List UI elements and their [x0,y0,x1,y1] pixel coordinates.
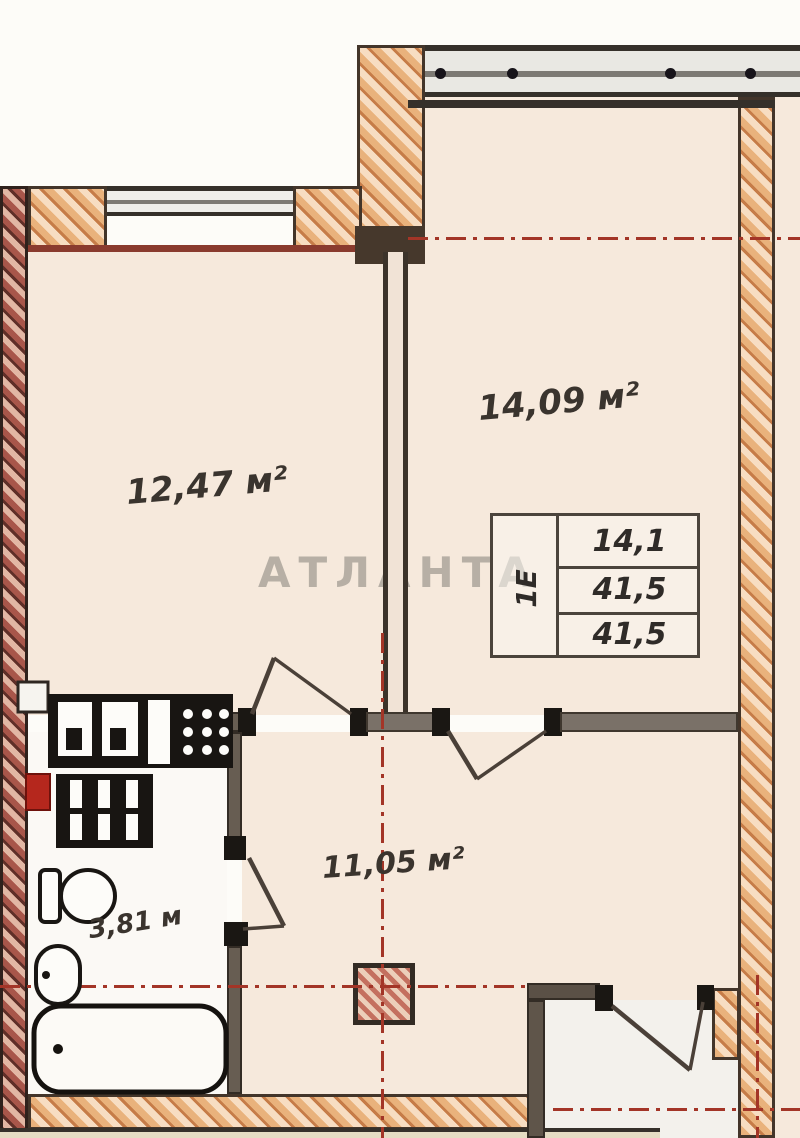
door-swing-entry [612,1002,703,1070]
floor-plan: АТЛАНТА [0,0,800,1138]
stamp-apartment-type: 1Е [510,569,543,608]
boiler-icon [26,774,50,810]
sink-icon [36,946,80,1004]
apartment-stamp: 1Е 14,1 41,5 41,5 [490,513,700,658]
stamp-total-area: 41,5 [559,572,700,607]
door-swing-bathroom [243,858,284,929]
stamp-living-area: 14,1 [559,524,700,559]
stamp-total-area-2: 41,5 [559,617,700,652]
stamp-grid-line [556,566,700,569]
bathtub-icon [34,1006,226,1092]
door-swing-hallway [448,731,546,779]
door-swing-kitchen [252,658,351,714]
washing-machine-icon [56,774,153,848]
stamp-grid-line [556,612,700,615]
stove-burners-icon [172,698,233,764]
